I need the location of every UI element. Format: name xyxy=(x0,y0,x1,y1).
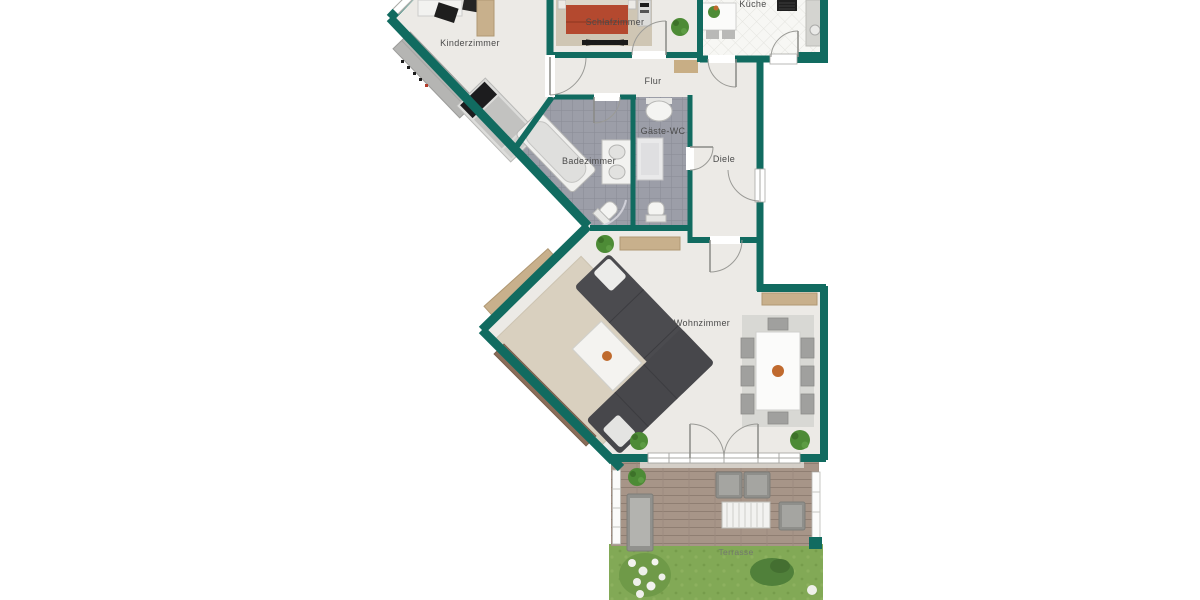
label-kinderzimmer: Kinderzimmer xyxy=(440,38,500,48)
wc-shower xyxy=(637,138,663,180)
label-badezimmer: Badezimmer xyxy=(562,156,616,166)
potted-plant xyxy=(596,235,614,253)
wall-terrace-right-corner xyxy=(809,537,822,549)
sun-lounger xyxy=(744,472,770,498)
terrace-railing-left xyxy=(613,470,621,544)
label-wohnzimmer: Wohnzimmer xyxy=(674,318,730,328)
sun-lounger-vertical xyxy=(627,494,653,551)
wc-sink xyxy=(646,101,672,121)
doormat xyxy=(674,60,698,73)
potted-plant xyxy=(790,430,810,450)
tv-sideboard xyxy=(582,40,628,45)
potted-plant xyxy=(671,18,689,36)
garden-grass xyxy=(609,544,823,600)
label-schlafzimmer: Schlafzimmer xyxy=(586,17,645,27)
terrace-railing-right xyxy=(812,472,820,538)
floorplan-canvas: Kinderzimmer Schlafzimmer Küche Flur Bad… xyxy=(0,0,1200,600)
floorplan-svg: Kinderzimmer Schlafzimmer Küche Flur Bad… xyxy=(0,0,1200,600)
potted-plant xyxy=(628,468,646,486)
flower-tuft xyxy=(807,585,817,595)
stove xyxy=(777,0,797,11)
sun-lounger xyxy=(716,472,742,498)
outdoor-chair xyxy=(779,502,805,530)
label-flur: Flur xyxy=(645,76,662,86)
label-kueche: Küche xyxy=(739,0,766,9)
nightstand xyxy=(628,0,636,9)
label-terrasse: Terrasse xyxy=(719,547,754,557)
table-decor xyxy=(602,351,612,361)
potted-plant xyxy=(630,432,648,450)
kitchen-chair xyxy=(722,30,735,39)
kitchen-chair xyxy=(706,30,719,39)
outdoor-table xyxy=(722,502,770,528)
fruit-bowl xyxy=(772,365,784,377)
bed-sheet xyxy=(566,0,628,5)
sideboard-tan xyxy=(762,293,817,305)
sideboard-tan xyxy=(620,237,680,250)
terrace-deck xyxy=(603,450,822,551)
shelf-tan xyxy=(477,0,494,36)
label-gaeste-wc: Gäste-WC xyxy=(641,126,686,136)
nightstand xyxy=(558,0,566,9)
label-diele: Diele xyxy=(713,154,735,164)
wc-toilet xyxy=(646,202,666,222)
